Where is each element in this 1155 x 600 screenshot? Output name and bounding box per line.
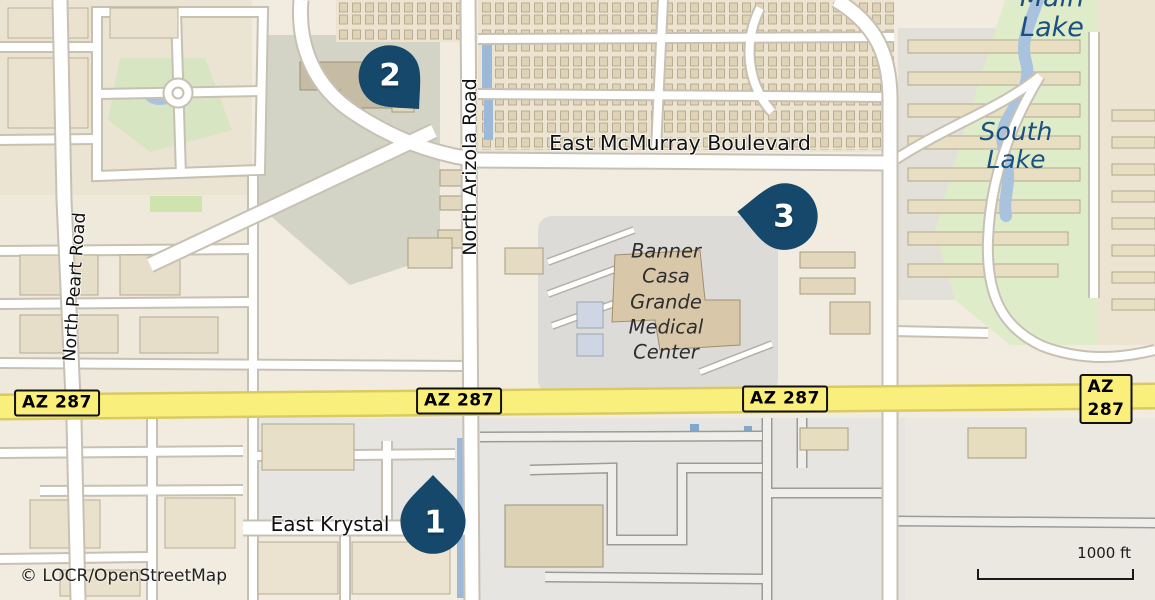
- label-south-lake-line1: South: [980, 118, 1053, 146]
- label-south-lake: South Lake: [980, 118, 1053, 174]
- highway-az287: [0, 396, 1155, 407]
- label-main-lake: Main Lake: [1001, 0, 1104, 43]
- label-medical-line3: Grande: [629, 289, 704, 314]
- route-shield-az287: AZ 287: [14, 390, 100, 417]
- map-viewport[interactable]: AZ 287 AZ 287 AZ 287 AZ 287 North Peart …: [0, 0, 1155, 600]
- scale-bar: [977, 569, 1134, 580]
- map-canvas: [0, 0, 1155, 600]
- label-medical-center: Banner Casa Grande Medical Center: [629, 239, 704, 366]
- scale-bar-label: 1000 ft: [1000, 544, 1131, 562]
- marker-1-number: 1: [424, 504, 446, 540]
- label-medical-line1: Banner: [629, 239, 704, 264]
- road-label-east-krystal: East Krystal: [271, 512, 390, 536]
- label-medical-line2: Casa: [629, 264, 704, 289]
- label-south-lake-line2: Lake: [980, 146, 1053, 174]
- label-medical-line4: Medical: [629, 315, 704, 340]
- route-shield-az287: AZ 287: [1080, 374, 1133, 424]
- marker-2-number: 2: [379, 57, 401, 93]
- marker-3-number: 3: [773, 198, 795, 234]
- route-shield-az287: AZ 287: [416, 388, 502, 415]
- road-label-mcmurray: East McMurray Boulevard: [549, 131, 811, 155]
- road-label-north-arizola: North Arizola Road: [459, 78, 481, 256]
- map-attribution: © LOCR/OpenStreetMap: [20, 566, 227, 586]
- label-medical-line5: Center: [629, 340, 704, 365]
- route-shield-az287: AZ 287: [742, 386, 828, 413]
